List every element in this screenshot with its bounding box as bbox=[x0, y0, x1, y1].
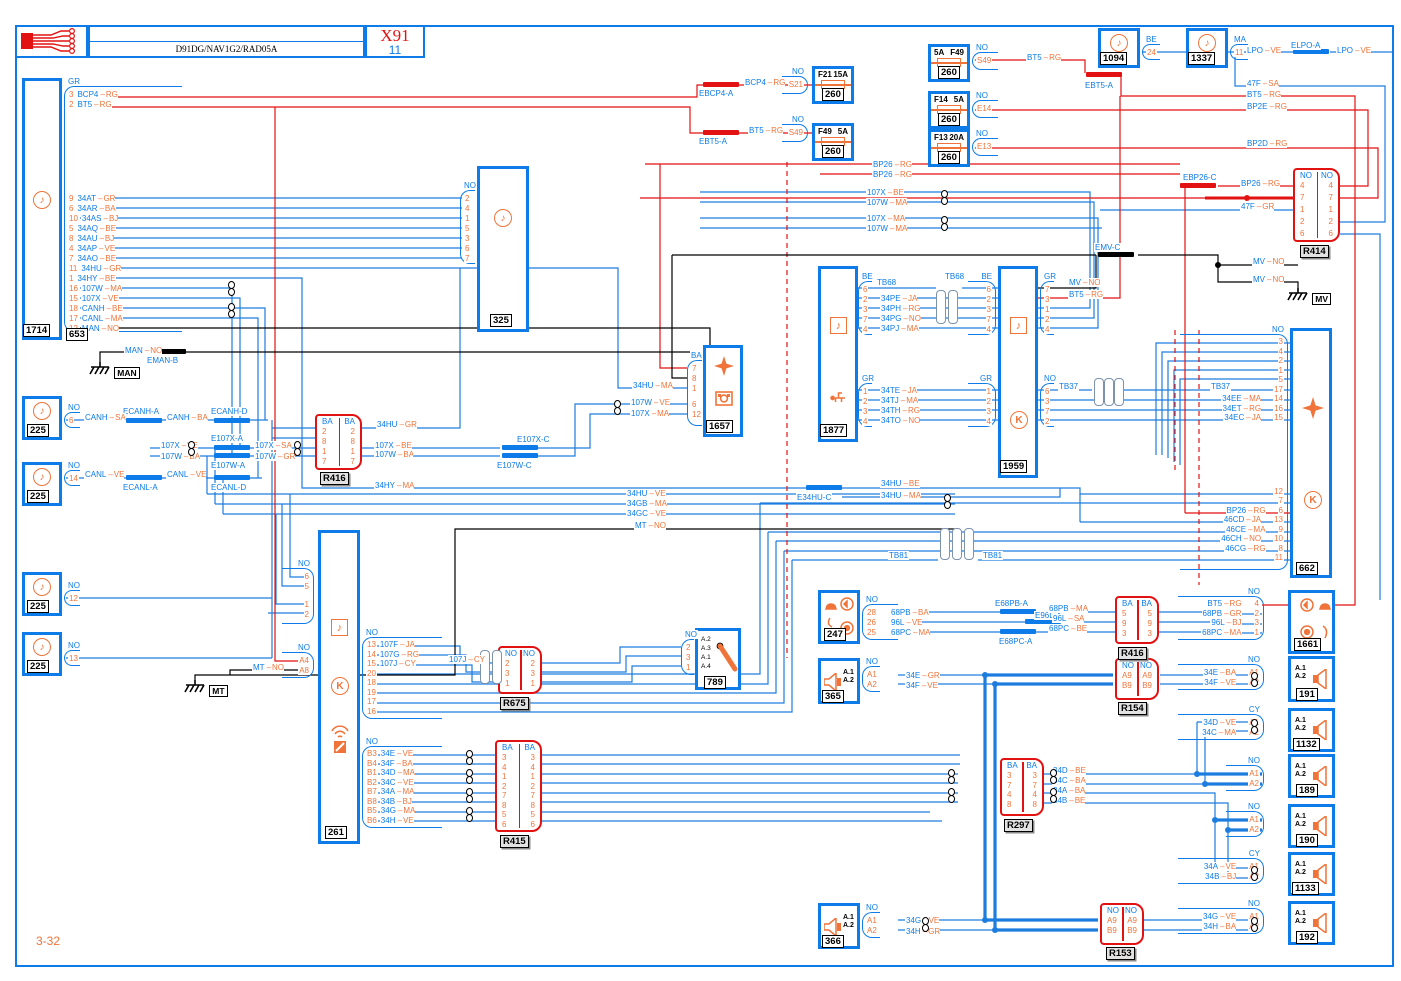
usb-icon bbox=[830, 391, 847, 405]
antenna-lever-icon bbox=[715, 641, 739, 675]
terminal-label: A.2 bbox=[1295, 673, 1306, 681]
shield-label-tb37-a: TB37 bbox=[1058, 382, 1079, 391]
k-circle-icon: K bbox=[331, 677, 349, 695]
wire-label-34a-ba: 34ABA bbox=[1052, 786, 1085, 795]
pin-row: 268PBGR bbox=[1178, 609, 1260, 619]
connector-color: CY bbox=[1248, 849, 1261, 858]
pin-gap bbox=[282, 591, 283, 599]
splice-ebp26-c bbox=[1180, 183, 1216, 188]
connector-color: NO bbox=[463, 181, 477, 190]
music-note-icon: ♪ bbox=[1010, 317, 1027, 334]
title-block: D91DG/NAV1G2/RAD05A bbox=[88, 25, 365, 58]
wire-label-lpo-ve-1: LPOVE bbox=[1246, 46, 1281, 55]
fuse-rating: 5A bbox=[838, 127, 848, 136]
speaker-icon bbox=[1313, 864, 1333, 884]
antenna-position: A.3 bbox=[701, 644, 711, 653]
component-tag-225b: 225 bbox=[27, 490, 49, 503]
pin-row: 946CEMA bbox=[1180, 525, 1284, 535]
wire-label-34to: 34TONO bbox=[880, 416, 920, 425]
splice-e107w-c bbox=[502, 453, 538, 458]
connector-tag-r154: R154 bbox=[1118, 702, 1147, 715]
pin-row: B734AMA bbox=[366, 787, 442, 797]
logo-box bbox=[15, 25, 88, 58]
splice-e107w-a bbox=[214, 453, 250, 458]
junction-dot bbox=[1225, 827, 1231, 833]
shield-capsule bbox=[1114, 378, 1124, 406]
terminal-label: A.1 bbox=[843, 669, 854, 677]
component-tag-192: 192 bbox=[1296, 931, 1318, 944]
ground-man: MAN bbox=[88, 362, 140, 379]
connector-color-left: NO bbox=[1300, 171, 1312, 181]
fuse-rating: 5A bbox=[954, 95, 964, 104]
fuse-tag-260: 260 bbox=[822, 145, 844, 158]
twist-icon bbox=[614, 400, 621, 415]
pin-row: 4 bbox=[1180, 347, 1284, 357]
terminal-label: A.2 bbox=[1295, 725, 1306, 733]
wire-label-34e-gr: 34EGR bbox=[905, 671, 940, 680]
pin-row: 1534ECJA bbox=[1180, 413, 1284, 423]
pin-number: S21 bbox=[788, 80, 804, 89]
pin-row: 6 bbox=[282, 571, 310, 581]
antenna-phone-icon bbox=[330, 721, 350, 755]
wire-label-68pb: 68PBBA bbox=[890, 608, 929, 617]
connector-color: NO bbox=[297, 643, 311, 652]
radio-icon: ♪ bbox=[1110, 34, 1128, 52]
terminal-label: A.2 bbox=[1295, 918, 1306, 926]
terminal-label: A.1 bbox=[1295, 861, 1306, 869]
connector-1959-no: NO 6372 bbox=[1040, 383, 1054, 427]
twist-icon bbox=[944, 494, 951, 509]
connector-1877-be: BE 62374 bbox=[858, 281, 872, 335]
connector-color: NO bbox=[1247, 756, 1261, 765]
wire-label-68pb-ma: 68PBMA bbox=[1048, 604, 1088, 613]
splice-label-e107x-c: E107X-C bbox=[516, 435, 550, 444]
splice-ebt5-a bbox=[703, 130, 739, 135]
connector-color-right: BA bbox=[344, 417, 355, 427]
component-261-telematics: ♪ K bbox=[318, 530, 360, 844]
wire-label-107x-be: 107XBE bbox=[374, 441, 412, 450]
connector-color-right: NO bbox=[523, 649, 535, 659]
shield-capsule bbox=[1094, 378, 1104, 406]
wire-label-bp26-rg-r414: BP26RG bbox=[1240, 179, 1280, 188]
radio-icon: ♪ bbox=[33, 191, 51, 209]
pin-row: A2 bbox=[1226, 824, 1260, 834]
connector-color: NO bbox=[791, 115, 805, 124]
connector-color-left: BA bbox=[1122, 599, 1133, 609]
splice-label-emv-c: EMV-C bbox=[1094, 243, 1121, 252]
connector-261-top-left: NO 65 12 bbox=[282, 568, 314, 624]
wiring-diagram-page: D91DG/NAV1G2/RAD05A X91 11 3-32 ♪ 1714 6… bbox=[0, 0, 1401, 981]
pin-row: 7 bbox=[1044, 284, 1054, 294]
wire-label-107x-ma-mid: 107XMA bbox=[866, 214, 905, 223]
pin-pair-row: B9B9 bbox=[1107, 926, 1137, 936]
shield-label-tb68-a: TB68 bbox=[876, 278, 897, 287]
twist-icon bbox=[1251, 672, 1258, 687]
splice-label-e68pc-a: E68PC-A bbox=[998, 637, 1033, 646]
connector-color: NO bbox=[975, 91, 989, 100]
splice-label-ebt5-a2: EBT5-A bbox=[1084, 81, 1114, 90]
pin-row: A2 bbox=[866, 925, 880, 935]
twist-icon bbox=[1050, 788, 1057, 803]
pin-row: A2 bbox=[1226, 778, 1260, 788]
pin-row: 2 bbox=[464, 193, 475, 203]
pin-gap bbox=[1180, 423, 1181, 487]
ground-icon bbox=[88, 362, 112, 376]
wire-label-107w-ma-mid: 107WMA bbox=[866, 198, 907, 207]
connector-color: NO bbox=[975, 129, 989, 138]
pin-row: 6 bbox=[862, 284, 872, 294]
pin-number: 12 bbox=[68, 594, 79, 603]
pin-gap bbox=[68, 109, 69, 193]
pin-row: 1 bbox=[691, 383, 702, 393]
fuse-name: F49 bbox=[950, 48, 964, 57]
pin-pair-row: 66 bbox=[1300, 229, 1333, 241]
pin-row: A234CMA bbox=[1178, 727, 1260, 737]
pin-row: 6BP26RG bbox=[1180, 506, 1284, 516]
pin-number: E13 bbox=[976, 142, 992, 151]
music-note-icon: ♪ bbox=[830, 317, 847, 334]
connector-366: NO A1A2 bbox=[862, 912, 880, 938]
pin-row: 2 bbox=[1044, 416, 1054, 426]
wire-label-96l-sa: 96LSA bbox=[1052, 614, 1084, 623]
component-tag-261: 261 bbox=[325, 826, 347, 839]
component-tag-191: 191 bbox=[1296, 688, 1318, 701]
ground-icon bbox=[1286, 288, 1310, 302]
connector-color: BE bbox=[980, 272, 993, 281]
fuse-tag-260: 260 bbox=[822, 88, 844, 101]
connector-s49-top: NO S49 bbox=[972, 52, 998, 70]
fuse-tag-260: 260 bbox=[938, 66, 960, 79]
wire-label-bt5-rg-right: BT5RG bbox=[1246, 90, 1281, 99]
pin-number: 13 bbox=[68, 654, 79, 663]
twist-icon bbox=[922, 917, 929, 932]
pin-pair-row: 11 bbox=[1300, 205, 1333, 217]
fuse-rating: 5A bbox=[934, 48, 944, 57]
antenna-position-labels: A.2A.3A.1A.4 bbox=[701, 635, 711, 671]
pin-row: B634HVE bbox=[366, 816, 442, 826]
connector-color: NO bbox=[1271, 325, 1285, 334]
shield-label-tb68-b: TB68 bbox=[944, 272, 965, 281]
fuse-name: F14 bbox=[934, 95, 948, 104]
wire-label-34c-ba: 34CBA bbox=[1052, 776, 1086, 785]
connector-color: CY bbox=[1248, 705, 1261, 714]
antenna-position: A.2 bbox=[701, 635, 711, 644]
splice-ecanl-a bbox=[126, 475, 162, 480]
component-tag-1337: 1337 bbox=[1188, 52, 1215, 65]
pin-row: 1 bbox=[1044, 304, 1054, 314]
pin-row: A134GVE bbox=[1178, 911, 1260, 921]
connector-color: NO bbox=[365, 628, 379, 637]
connector-tag-653: 653 bbox=[66, 328, 88, 341]
wire-label-bt5-rg-top: BT5RG bbox=[1026, 53, 1061, 62]
connector-tag-r414: R414 bbox=[1300, 245, 1329, 258]
pin-pair-row: 99 bbox=[1122, 619, 1152, 629]
junction-dot bbox=[1194, 771, 1200, 777]
connector-color: NO bbox=[865, 657, 879, 666]
splice-e34hu-c bbox=[806, 485, 842, 490]
wire-label-bp2e-rg: BP2ERG bbox=[1246, 102, 1287, 111]
junction-dot bbox=[992, 927, 998, 933]
component-tag-1094: 1094 bbox=[1100, 52, 1127, 65]
pin-row: 3 bbox=[1180, 337, 1284, 347]
component-tag-190: 190 bbox=[1296, 834, 1318, 847]
connector-color-left: BA bbox=[322, 417, 333, 427]
junction-dot-red bbox=[1244, 195, 1250, 201]
fuse-name: F21 bbox=[818, 70, 832, 79]
pin-number: 11 bbox=[1234, 48, 1244, 57]
pin-row: 634ARBA bbox=[68, 203, 182, 213]
connector-189: NO A1A2 bbox=[1226, 765, 1264, 791]
pin-row: 134HYBE bbox=[68, 273, 182, 283]
wire-label-34pe: 34PEJA bbox=[880, 294, 917, 303]
pin-row: 534AQBE bbox=[68, 223, 182, 233]
wire-label-107x-be-mid: 107XBE bbox=[866, 188, 904, 197]
junction-dot bbox=[992, 681, 998, 687]
pin-pair-row: 11 bbox=[505, 679, 535, 689]
pin-pair-row: 22 bbox=[502, 782, 535, 792]
pin-row: 3 bbox=[1044, 396, 1054, 406]
connector-r414: NONO 4477112266 bbox=[1293, 168, 1340, 242]
wire-label-47f-gr: 47FGR bbox=[1240, 202, 1274, 211]
splice-label-e68pb-a: E68PB-A bbox=[994, 599, 1029, 608]
music-note-icon: ♪ bbox=[331, 619, 348, 636]
junction-dot bbox=[1212, 817, 1218, 823]
pin-pair-row: 66 bbox=[502, 820, 535, 830]
wire-label-68pc: 68PCMA bbox=[890, 628, 930, 637]
fuse-name: F49 bbox=[818, 127, 832, 136]
pin-pair-row: 33 bbox=[502, 753, 535, 763]
ground-mv: MV bbox=[1286, 288, 1331, 305]
pin-row: 7 bbox=[862, 314, 872, 324]
connector-225d: NO 13 bbox=[64, 650, 80, 666]
connector-color: GR bbox=[1043, 272, 1057, 281]
junction-dot bbox=[982, 917, 988, 923]
connector-r154: NONO A9A9B9B9 bbox=[1115, 658, 1159, 700]
wire-label-canl-ve1: CANLVE bbox=[84, 470, 124, 479]
pin-number: 24 bbox=[1146, 48, 1157, 57]
connector-789: NO 231 bbox=[681, 639, 694, 675]
terminal-label: A.1 bbox=[1295, 763, 1306, 771]
pin-row: 14107GRG bbox=[366, 650, 442, 660]
connector-s49-left: NO S49 bbox=[782, 124, 808, 142]
component-tag-1657: 1657 bbox=[706, 420, 733, 433]
component-tag-225c: 225 bbox=[27, 600, 49, 613]
connector-color: BE bbox=[1145, 35, 1158, 44]
pin-row: A2 bbox=[866, 679, 880, 689]
wire-label-mv-no-1: MVNO bbox=[1252, 257, 1284, 266]
connector-color-right: BA bbox=[1026, 761, 1037, 771]
connector-s21: NO S21 bbox=[782, 76, 808, 94]
component-tag-189: 189 bbox=[1296, 784, 1318, 797]
ground-icon bbox=[183, 680, 207, 694]
connector-tag-r416a: R416 bbox=[320, 472, 349, 485]
connector-1094: BE 24 bbox=[1142, 44, 1160, 60]
connector-tag-r675: R675 bbox=[500, 697, 529, 710]
connector-color: NO bbox=[1247, 655, 1261, 664]
pin-row: 7 bbox=[1180, 496, 1284, 506]
splice-e107x-c bbox=[502, 445, 538, 450]
pin-row: A234FVE bbox=[1178, 677, 1260, 687]
pin-pair-row: B9B9 bbox=[1122, 681, 1152, 691]
connector-662: NO 34215171434EEMA1634ETRG1534ECJA 1276B… bbox=[1180, 334, 1288, 570]
wire-label-68pc-be: 68PCBE bbox=[1048, 624, 1087, 633]
pin-row: 2 bbox=[282, 609, 310, 619]
wire-label-34hu-gr: 34HUGR bbox=[376, 420, 417, 429]
wire-label-bcp4-rg: BCP4RG bbox=[744, 78, 785, 87]
wire-label-107x-sa: 107XSA bbox=[254, 441, 292, 450]
pin-pair-row: 33 bbox=[1007, 771, 1037, 781]
shield-capsule bbox=[940, 528, 950, 560]
pin-row: 1034ASBJ bbox=[68, 213, 182, 223]
pin-row: A1 bbox=[1226, 768, 1260, 778]
pin-pair-row: 22 bbox=[322, 427, 355, 437]
pin-row: B234CVE bbox=[366, 778, 442, 788]
terminal-label: A.1 bbox=[1295, 813, 1306, 821]
wire-label-mt-no-mid: MTNO bbox=[634, 521, 666, 530]
pin-pair-row: 44 bbox=[1007, 790, 1037, 800]
component-tag-225a: 225 bbox=[27, 424, 49, 437]
connector-1661: NO 4BT5RG268PBGR396LBJ168PCMA bbox=[1178, 596, 1264, 640]
pin-row: 16107WMA bbox=[68, 283, 182, 293]
pin-row: 834AUBJ bbox=[68, 233, 182, 243]
pin-row: 1134HUGR bbox=[68, 263, 182, 273]
pin-row: 1 bbox=[282, 599, 310, 609]
pin-pair-row: A9A9 bbox=[1122, 671, 1152, 681]
pin-row: 3BCP4RG bbox=[68, 89, 182, 99]
sheet-code: X91 bbox=[367, 27, 423, 44]
pin-row: 3 bbox=[685, 652, 694, 662]
blue-wires-r416a bbox=[272, 268, 1290, 497]
connector-color-right: NO bbox=[1140, 661, 1152, 671]
junction-dot bbox=[982, 672, 988, 678]
twist-icon bbox=[294, 441, 301, 456]
connector-color: NO bbox=[865, 903, 879, 912]
pin-row: 934ATGR bbox=[68, 193, 182, 203]
pin-pair-row: A9A9 bbox=[1107, 916, 1137, 926]
pin-row: 1434EEMA bbox=[1180, 394, 1284, 404]
pin-row: 3 bbox=[862, 304, 872, 314]
pin-row: 20 bbox=[366, 669, 442, 679]
pin-row: B534GMA bbox=[366, 806, 442, 816]
splice-label-e34hu-c: E34HU-C bbox=[796, 493, 832, 502]
twist-icon bbox=[228, 303, 235, 318]
wire-label-bt5-rg-1959: BT5RG bbox=[1068, 290, 1103, 299]
twist-icon bbox=[941, 190, 948, 205]
wire-label-canl-ve2: CANLVE bbox=[166, 470, 206, 479]
wire-label-107w-ma-mid2: 107WMA bbox=[866, 224, 907, 233]
wire-label-man-no: MANNO bbox=[124, 346, 162, 355]
splice-e107x-a bbox=[214, 445, 250, 450]
wire-label-34te: 34TEJA bbox=[880, 386, 917, 395]
pin-pair-row: 11 bbox=[502, 772, 535, 782]
wire-label-bp2d-rg: BP2DRG bbox=[1246, 139, 1287, 148]
splice-label-ecanl-a: ECANL-A bbox=[122, 483, 159, 492]
radio-icon: ♪ bbox=[33, 402, 51, 420]
connector-color: BE bbox=[861, 272, 874, 281]
shield-label-tb81-b: TB81 bbox=[982, 551, 1003, 560]
twist-icon bbox=[228, 281, 235, 296]
terminal-label: A.1 bbox=[1295, 665, 1306, 673]
splice-label-ecanh-a: ECANH-A bbox=[122, 407, 160, 416]
pin-row: 19 bbox=[366, 688, 442, 698]
twist-icon bbox=[188, 441, 195, 456]
wire-label-34b-be: 34BBE bbox=[1052, 796, 1085, 805]
pin-row: A134AVE bbox=[1178, 861, 1260, 871]
connector-color-right: NO bbox=[1125, 906, 1137, 916]
connector-color-1714: GR bbox=[67, 77, 81, 86]
pin-row: B334EVE bbox=[366, 749, 442, 759]
pin-row: 2 bbox=[862, 396, 872, 406]
twist-icon bbox=[948, 769, 955, 784]
pin-row: 6 bbox=[464, 243, 475, 253]
component-tag-789: 789 bbox=[704, 676, 726, 689]
pin-row: 396LBJ bbox=[1178, 618, 1260, 628]
connector-color: NO bbox=[67, 461, 81, 470]
pin-row: A1 bbox=[866, 669, 880, 679]
wire-label-bp26-rg-m1: BP26RG bbox=[872, 160, 912, 169]
radio-icon: ♪ bbox=[1198, 34, 1216, 52]
component-tag-366: 366 bbox=[822, 935, 844, 948]
connector-225c: NO 12 bbox=[64, 590, 80, 606]
pin-row: 168PCMA bbox=[1178, 628, 1260, 638]
schematic-title: D91DG/NAV1G2/RAD05A bbox=[90, 41, 363, 56]
connector-e13: NO E13 bbox=[972, 138, 998, 156]
splice-label-e107w-a: E107W-A bbox=[210, 461, 246, 470]
component-tag-225d: 225 bbox=[27, 660, 49, 673]
pin-row: 1 bbox=[1180, 366, 1284, 376]
pin-row: 2BT5RG bbox=[68, 99, 182, 109]
pin-row: 8 bbox=[691, 373, 702, 383]
connector-tag-r415: R415 bbox=[500, 835, 529, 848]
pin-pair-row: 33 bbox=[505, 669, 535, 679]
pin-pair-row: 77 bbox=[502, 791, 535, 801]
pin-row: B134DMA bbox=[366, 768, 442, 778]
connector-color-left: NO bbox=[1107, 906, 1119, 916]
splice-emv-c bbox=[1098, 252, 1134, 257]
wire-label-34f-ve: 34FVE bbox=[905, 681, 938, 690]
splice-label-e107x-a: E107X-A bbox=[210, 434, 244, 443]
ground-tag-man: MAN bbox=[114, 367, 139, 379]
speaker-icon bbox=[1313, 720, 1333, 740]
wire-label-canh-ba: CANHBA bbox=[166, 413, 208, 422]
pin-row: A234HBA bbox=[1178, 921, 1260, 931]
ground-tag-mt: MT bbox=[209, 685, 227, 697]
twist-icon bbox=[948, 788, 955, 803]
pin-row: 4BT5RG bbox=[1178, 599, 1260, 609]
wire-label-34pj: 34PJMA bbox=[880, 324, 919, 333]
speaker-icon bbox=[1313, 766, 1333, 786]
pin-row: 16 bbox=[366, 707, 442, 717]
wire-label-canh-sa: CANHSA bbox=[84, 413, 126, 422]
splice-label-ecanl-d: ECANL-D bbox=[210, 483, 247, 492]
wire-label-mt-no-left: MTNO bbox=[252, 663, 284, 672]
shield-capsule bbox=[964, 528, 974, 560]
pin-pair-row: 55 bbox=[502, 810, 535, 820]
ground-mt: MT bbox=[183, 680, 228, 697]
connector-tag-r297: R297 bbox=[1004, 819, 1033, 832]
pin-pair-row: 88 bbox=[502, 801, 535, 811]
terminal-label: A.2 bbox=[1295, 821, 1306, 829]
pin-pair-row: 77 bbox=[322, 457, 355, 467]
wire-label-34gb-ma: 34GBMA bbox=[626, 499, 667, 508]
speaker-terminals: A.1A.2 bbox=[843, 669, 854, 685]
junction-dot bbox=[1202, 781, 1208, 787]
terminal-label: A.1 bbox=[1295, 717, 1306, 725]
twist-icon bbox=[1251, 719, 1258, 734]
pin-row: 11 bbox=[1180, 553, 1284, 563]
connector-tag-r416b: R416 bbox=[1118, 647, 1147, 660]
pin-row: A4 bbox=[282, 655, 310, 665]
